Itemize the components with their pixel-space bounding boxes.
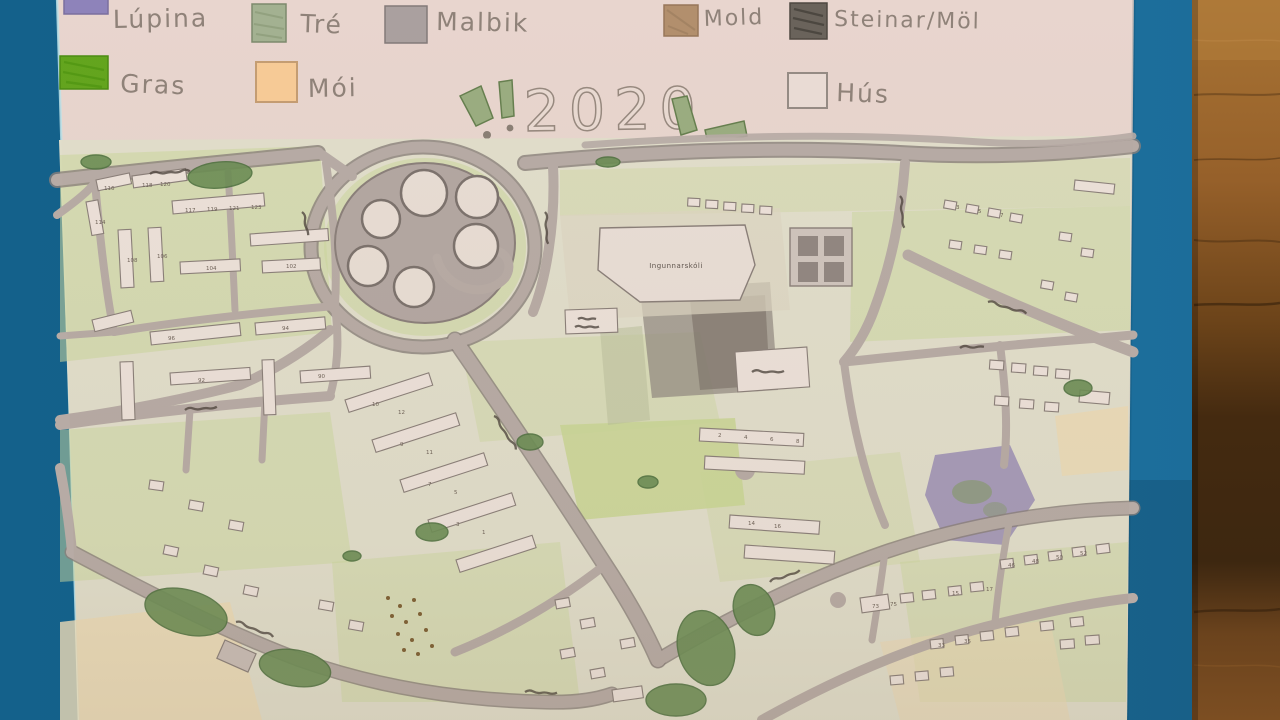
map-drawing: Ingunnarskóli — [57, 0, 1134, 720]
paper-lighting-overlay — [57, 0, 1134, 720]
photo-of-hand-drawn-map: Lúpina Tré Malbik Mold Steinar/Möl Gras — [0, 0, 1280, 720]
wood-floor — [1192, 0, 1280, 720]
